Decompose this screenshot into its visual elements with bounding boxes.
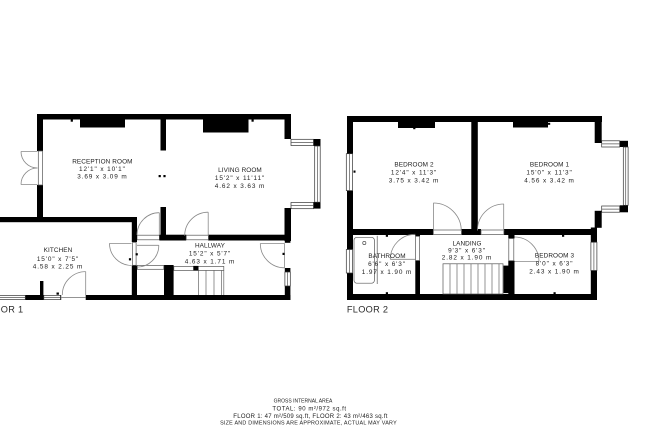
svg-text:3.75 x 3.42 m: 3.75 x 3.42 m (389, 178, 439, 185)
svg-text:8'0" x 6'3": 8'0" x 6'3" (536, 261, 574, 268)
svg-text:12'1" x 10'1": 12'1" x 10'1" (79, 166, 126, 173)
svg-text:1.97 x 1.90 m: 1.97 x 1.90 m (362, 269, 412, 276)
svg-text:12'4" x 11'3": 12'4" x 11'3" (391, 170, 437, 177)
svg-text:15'0" x 11'3": 15'0" x 11'3" (526, 170, 572, 177)
svg-text:KITCHEN: KITCHEN (44, 247, 73, 254)
svg-text:LIVING ROOM: LIVING ROOM (218, 167, 262, 174)
svg-text:BATHROOM: BATHROOM (368, 253, 405, 260)
svg-text:2.43 x 1.90 m: 2.43 x 1.90 m (529, 269, 579, 276)
svg-text:4.63 x 1.71 m: 4.63 x 1.71 m (185, 259, 235, 266)
svg-text:BEDROOM 3: BEDROOM 3 (535, 253, 575, 260)
svg-text:2.82 x 1.90 m: 2.82 x 1.90 m (442, 255, 492, 262)
svg-text:15'2" x 5'7": 15'2" x 5'7" (189, 251, 231, 258)
svg-text:4.56 x 3.42 m: 4.56 x 3.42 m (524, 178, 574, 185)
svg-text:FLOOR 2: FLOOR 2 (347, 305, 388, 315)
svg-text:RECEPTION ROOM: RECEPTION ROOM (72, 159, 132, 166)
svg-text:4.62 x 3.63 m: 4.62 x 3.63 m (215, 183, 265, 190)
svg-text:4.58 x 2.25 m: 4.58 x 2.25 m (33, 264, 83, 271)
svg-text:FLOOR 1: 47 m²/509 sq.ft, FLOO: FLOOR 1: 47 m²/509 sq.ft, FLOOR 2: 43 m²… (233, 414, 387, 420)
svg-text:SIZE AND DIMENSIONS ARE APPROX: SIZE AND DIMENSIONS ARE APPROXIMATE, ACT… (220, 420, 397, 426)
svg-text:BEDROOM 2: BEDROOM 2 (394, 162, 434, 169)
svg-text:FLOOR 1: FLOOR 1 (0, 305, 23, 315)
svg-text:9'3" x 6'3": 9'3" x 6'3" (448, 248, 486, 255)
svg-text:GROSS INTERNAL AREA: GROSS INTERNAL AREA (274, 399, 333, 405)
svg-text:6'6" x 6'3": 6'6" x 6'3" (368, 261, 406, 268)
svg-text:TOTAL: 90 m²/972 sq.ft: TOTAL: 90 m²/972 sq.ft (272, 407, 346, 413)
svg-text:LANDING: LANDING (452, 241, 481, 248)
svg-text:3.69 x 3.09 m: 3.69 x 3.09 m (77, 174, 127, 181)
svg-text:15'2" x 11'11": 15'2" x 11'11" (215, 175, 265, 182)
svg-text:BEDROOM 1: BEDROOM 1 (530, 162, 570, 169)
svg-text:HALLWAY: HALLWAY (195, 243, 226, 250)
svg-text:15'0" x 7'5": 15'0" x 7'5" (37, 256, 79, 263)
